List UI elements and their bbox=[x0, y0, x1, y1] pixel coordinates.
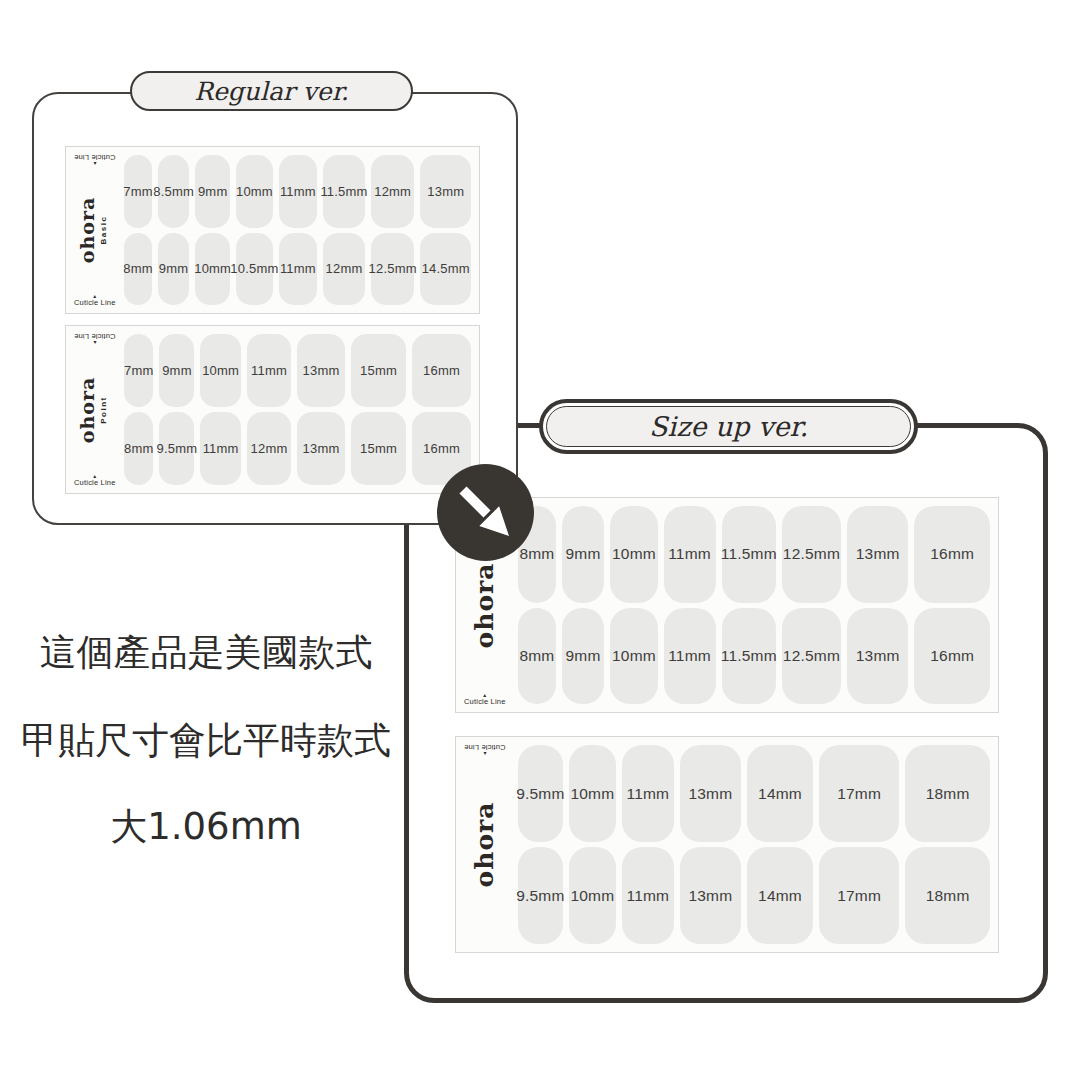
nail-swatch: 13mm bbox=[297, 334, 345, 407]
nail-size-label: 8mm bbox=[123, 261, 153, 276]
nail-swatch: 11.5mm bbox=[323, 155, 365, 228]
cuticle-line-label-bottom: ▲Cuticle Line bbox=[464, 693, 506, 707]
caption-line-1: 這個產品是美國款式 bbox=[0, 628, 412, 678]
nail-column: 15mm15mm bbox=[351, 334, 406, 485]
nail-grid: 8mm8mm 9mm9mm 10mm10mm 11mm11mm 11.5mm11… bbox=[514, 498, 994, 712]
nail-size-label: 11mm bbox=[626, 785, 669, 803]
nail-size-label: 10mm bbox=[612, 545, 656, 563]
nail-size-label: 9.5mm bbox=[157, 441, 198, 456]
nail-swatch: 15mm bbox=[351, 334, 406, 407]
nail-grid: 7mm8mm 8.5mm9mm 9mm10mm 10mm10.5mm 11mm1… bbox=[120, 147, 475, 313]
nail-swatch: 11mm bbox=[247, 334, 291, 407]
nail-swatch: 8mm bbox=[518, 608, 556, 705]
nail-swatch: 8.5mm bbox=[158, 155, 189, 228]
nail-swatch: 14mm bbox=[747, 847, 813, 944]
sizeup-title-pill-inner: Size up ver. bbox=[546, 406, 911, 447]
nail-size-label: 9mm bbox=[162, 363, 192, 378]
nail-swatch: 18mm bbox=[905, 847, 990, 944]
panel-gutter: ▲Cuticle Line ohoraPoint ▲Cuticle Line bbox=[66, 326, 120, 493]
nail-size-label: 17mm bbox=[837, 887, 881, 905]
nail-size-label: 11.5mm bbox=[320, 184, 367, 199]
brand-logo: ohora bbox=[456, 737, 514, 952]
nail-swatch: 10mm bbox=[236, 155, 273, 228]
caption-line-3: 大1.06mm bbox=[0, 802, 412, 852]
brand-logo: ohoraPoint bbox=[66, 326, 120, 493]
nail-size-label: 10mm bbox=[194, 261, 231, 276]
nail-size-label: 11mm bbox=[280, 184, 316, 199]
nail-column: 17mm17mm bbox=[819, 745, 899, 944]
cuticle-line-label-bottom: ▲Cuticle Line bbox=[74, 294, 116, 308]
brand-word: ohora bbox=[78, 376, 97, 442]
nail-swatch: 13mm bbox=[847, 608, 908, 705]
nail-swatch: 9mm bbox=[195, 155, 230, 228]
nail-swatch: 13mm bbox=[420, 155, 471, 228]
nail-column: 8.5mm9mm bbox=[158, 155, 189, 305]
nail-swatch: 16mm bbox=[914, 608, 990, 705]
panel-gutter: ▲Cuticle Line ohora bbox=[456, 737, 514, 952]
nail-swatch: 11.5mm bbox=[722, 608, 776, 705]
nail-swatch: 9mm bbox=[562, 506, 605, 603]
nail-size-label: 14.5mm bbox=[422, 261, 470, 276]
sizeup-title-pill: Size up ver. bbox=[539, 399, 918, 454]
arrow-badge bbox=[437, 464, 534, 561]
nail-swatch: 11mm bbox=[279, 233, 317, 306]
nail-column: 13mm13mm bbox=[847, 506, 908, 704]
nail-swatch: 11mm bbox=[622, 745, 674, 842]
nail-swatch: 13mm bbox=[847, 506, 908, 603]
nail-size-label: 10mm bbox=[236, 184, 273, 199]
arrow-down-right-icon bbox=[437, 464, 534, 561]
nail-swatch: 11mm bbox=[664, 608, 716, 705]
nail-swatch: 9mm bbox=[562, 608, 605, 705]
nail-swatch: 10mm bbox=[610, 506, 657, 603]
nail-size-label: 11mm bbox=[203, 441, 239, 456]
nail-column: 16mm16mm bbox=[914, 506, 990, 704]
panel-regular-basic: ▲Cuticle Line ohoraBasic ▲Cuticle Line 7… bbox=[65, 146, 480, 314]
regular-title-pill: Regular ver. bbox=[130, 71, 413, 111]
nail-swatch: 15mm bbox=[351, 412, 406, 485]
nail-swatch: 7mm bbox=[124, 155, 152, 228]
nail-column: 10mm10mm bbox=[569, 745, 616, 944]
nail-column: 7mm8mm bbox=[124, 155, 152, 305]
nail-swatch: 12.5mm bbox=[782, 506, 841, 603]
nail-size-label: 15mm bbox=[360, 363, 397, 378]
nail-size-label: 9mm bbox=[566, 647, 601, 665]
nail-size-label: 13mm bbox=[688, 887, 732, 905]
nail-size-label: 10mm bbox=[202, 363, 239, 378]
nail-column: 11.5mm12mm bbox=[323, 155, 365, 305]
nail-column: 13mm13mm bbox=[680, 745, 741, 944]
nail-size-label: 14mm bbox=[758, 887, 802, 905]
nail-size-label: 7mm bbox=[124, 363, 154, 378]
panel-sizeup-top: ohora ▲Cuticle Line 8mm8mm 9mm9mm 10mm10… bbox=[455, 497, 999, 713]
nail-swatch: 12mm bbox=[371, 155, 415, 228]
nail-size-label: 13mm bbox=[303, 441, 340, 456]
nail-column: 11mm11mm bbox=[622, 745, 674, 944]
nail-swatch: 9.5mm bbox=[518, 745, 563, 842]
nail-size-label: 10mm bbox=[570, 887, 614, 905]
nail-size-label: 13mm bbox=[856, 545, 900, 563]
nail-size-label: 10.5mm bbox=[230, 261, 278, 276]
nail-size-label: 11mm bbox=[668, 545, 711, 563]
nail-column: 11mm11mm bbox=[279, 155, 317, 305]
panel-sizeup-bottom: ▲Cuticle Line ohora 9.5mm9.5mm 10mm10mm … bbox=[455, 736, 999, 953]
nail-swatch: 11mm bbox=[664, 506, 716, 603]
nail-column: 10mm10.5mm bbox=[236, 155, 273, 305]
nail-size-label: 11.5mm bbox=[721, 647, 777, 665]
nail-size-label: 12mm bbox=[326, 261, 363, 276]
nail-column: 13mm13mm bbox=[297, 334, 345, 485]
cuticle-line-label-bottom: ▲Cuticle Line bbox=[74, 474, 116, 488]
nail-size-label: 9mm bbox=[198, 184, 228, 199]
nail-swatch: 10mm bbox=[610, 608, 657, 705]
nail-size-label: 17mm bbox=[837, 785, 881, 803]
nail-swatch: 13mm bbox=[680, 847, 741, 944]
nail-size-label: 7mm bbox=[123, 184, 153, 199]
nail-size-label: 9mm bbox=[159, 261, 189, 276]
nail-swatch: 10mm bbox=[200, 334, 240, 407]
nail-size-label: 11mm bbox=[626, 887, 669, 905]
nail-swatch: 14mm bbox=[747, 745, 813, 842]
nail-column: 12.5mm12.5mm bbox=[782, 506, 841, 704]
nail-swatch: 9mm bbox=[159, 334, 194, 407]
nail-size-label: 12.5mm bbox=[369, 261, 417, 276]
nail-column: 11.5mm11.5mm bbox=[722, 506, 776, 704]
nail-swatch: 12mm bbox=[323, 233, 365, 306]
brand-word: ohora bbox=[473, 802, 498, 888]
brand-line-label: Basic bbox=[99, 197, 108, 263]
nail-column: 16mm16mm bbox=[412, 334, 471, 485]
nail-size-label: 9.5mm bbox=[516, 785, 564, 803]
caption-line-2: 甲貼尺寸會比平時款式 bbox=[0, 716, 412, 766]
nail-size-label: 11mm bbox=[668, 647, 711, 665]
nail-size-label: 9mm bbox=[566, 545, 601, 563]
nail-size-label: 9.5mm bbox=[516, 887, 564, 905]
nail-size-label: 8mm bbox=[519, 647, 554, 665]
nail-swatch: 11.5mm bbox=[722, 506, 776, 603]
nail-swatch: 11mm bbox=[622, 847, 674, 944]
brand-logo: ohoraBasic bbox=[66, 147, 120, 313]
nail-size-label: 11mm bbox=[251, 363, 287, 378]
nail-column: 12mm12.5mm bbox=[371, 155, 415, 305]
nail-size-label: 16mm bbox=[930, 647, 974, 665]
nail-swatch: 7mm bbox=[124, 334, 153, 407]
nail-size-label: 16mm bbox=[930, 545, 974, 563]
nail-swatch: 18mm bbox=[905, 745, 990, 842]
sizeup-title: Size up ver. bbox=[649, 411, 808, 442]
nail-swatch: 8mm bbox=[124, 233, 152, 306]
nail-size-label: 14mm bbox=[758, 785, 802, 803]
brand-line-label: Point bbox=[99, 376, 108, 442]
nail-swatch: 12.5mm bbox=[371, 233, 415, 306]
nail-size-label: 11mm bbox=[280, 261, 316, 276]
brand-word: ohora bbox=[78, 197, 97, 263]
nail-column: 10mm10mm bbox=[610, 506, 657, 704]
nail-size-label: 10mm bbox=[612, 647, 656, 665]
nail-size-label: 13mm bbox=[427, 184, 464, 199]
nail-swatch: 10.5mm bbox=[236, 233, 273, 306]
nail-column: 9mm10mm bbox=[195, 155, 230, 305]
nail-grid: 9.5mm9.5mm 10mm10mm 11mm11mm 13mm13mm 14… bbox=[514, 737, 994, 952]
nail-size-label: 13mm bbox=[856, 647, 900, 665]
nail-swatch: 17mm bbox=[819, 745, 899, 842]
nail-size-label: 18mm bbox=[926, 887, 970, 905]
nail-column: 11mm12mm bbox=[247, 334, 291, 485]
nail-swatch: 13mm bbox=[680, 745, 741, 842]
nail-size-label: 16mm bbox=[423, 363, 460, 378]
nail-size-label: 12mm bbox=[374, 184, 411, 199]
nail-column: 11mm11mm bbox=[664, 506, 716, 704]
nail-swatch: 16mm bbox=[914, 506, 990, 603]
nail-swatch: 16mm bbox=[412, 334, 471, 407]
nail-column: 9mm9mm bbox=[562, 506, 605, 704]
regular-title: Regular ver. bbox=[194, 77, 349, 106]
nail-swatch: 11mm bbox=[200, 412, 240, 485]
nail-swatch: 11mm bbox=[279, 155, 317, 228]
nail-size-label: 8mm bbox=[124, 441, 154, 456]
nail-swatch: 9.5mm bbox=[159, 412, 194, 485]
nail-swatch: 10mm bbox=[569, 745, 616, 842]
nail-column: 14mm14mm bbox=[747, 745, 813, 944]
nail-size-label: 13mm bbox=[688, 785, 732, 803]
nail-column: 7mm8mm bbox=[124, 334, 153, 485]
nail-grid: 7mm8mm 9mm9.5mm 10mm11mm 11mm12mm 13mm13… bbox=[120, 326, 475, 493]
nail-swatch: 10mm bbox=[569, 847, 616, 944]
nail-size-label: 12.5mm bbox=[783, 647, 840, 665]
nail-size-label: 11.5mm bbox=[721, 545, 777, 563]
nail-column: 9.5mm9.5mm bbox=[518, 745, 563, 944]
nail-swatch: 13mm bbox=[297, 412, 345, 485]
nail-size-label: 12mm bbox=[251, 441, 288, 456]
nail-column: 9mm9.5mm bbox=[159, 334, 194, 485]
nail-swatch: 10mm bbox=[195, 233, 230, 306]
nail-swatch: 9mm bbox=[158, 233, 189, 306]
nail-column: 13mm14.5mm bbox=[420, 155, 471, 305]
panel-gutter: ▲Cuticle Line ohoraBasic ▲Cuticle Line bbox=[66, 147, 120, 313]
nail-size-label: 18mm bbox=[926, 785, 970, 803]
nail-size-label: 15mm bbox=[360, 441, 397, 456]
nail-size-label: 8.5mm bbox=[153, 184, 194, 199]
page: Regular ver. Size up ver. ▲Cuticle Line … bbox=[0, 0, 1080, 1080]
nail-size-label: 10mm bbox=[570, 785, 614, 803]
panel-regular-point: ▲Cuticle Line ohoraPoint ▲Cuticle Line 7… bbox=[65, 325, 480, 494]
nail-column: 10mm11mm bbox=[200, 334, 240, 485]
nail-swatch: 8mm bbox=[124, 412, 153, 485]
nail-swatch: 9.5mm bbox=[518, 847, 563, 944]
nail-size-label: 12.5mm bbox=[783, 545, 840, 563]
nail-swatch: 17mm bbox=[819, 847, 899, 944]
nail-size-label: 13mm bbox=[303, 363, 340, 378]
nail-swatch: 14.5mm bbox=[420, 233, 471, 306]
nail-column: 18mm18mm bbox=[905, 745, 990, 944]
nail-size-label: 16mm bbox=[423, 441, 460, 456]
nail-swatch: 12mm bbox=[247, 412, 291, 485]
nail-swatch: 12.5mm bbox=[782, 608, 841, 705]
brand-word: ohora bbox=[473, 562, 498, 648]
